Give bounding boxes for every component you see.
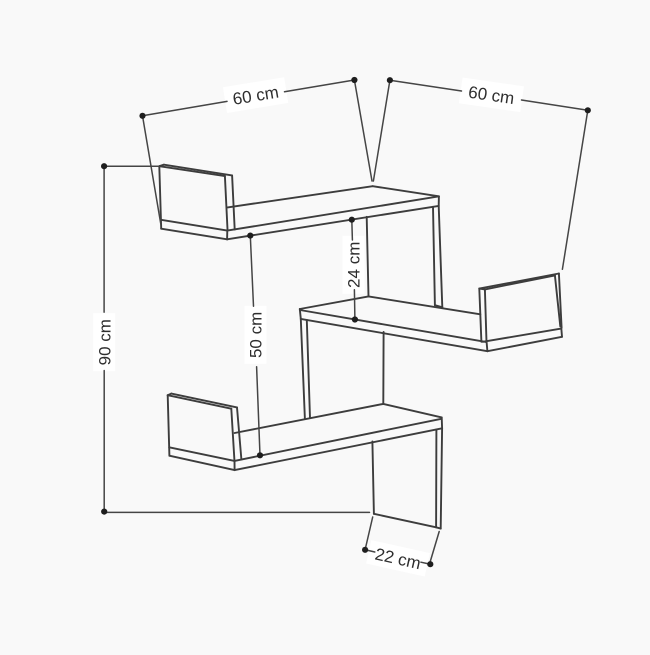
svg-text:90 cm: 90 cm xyxy=(95,319,114,365)
svg-text:50 cm: 50 cm xyxy=(247,312,266,358)
svg-text:24 cm: 24 cm xyxy=(345,242,364,288)
